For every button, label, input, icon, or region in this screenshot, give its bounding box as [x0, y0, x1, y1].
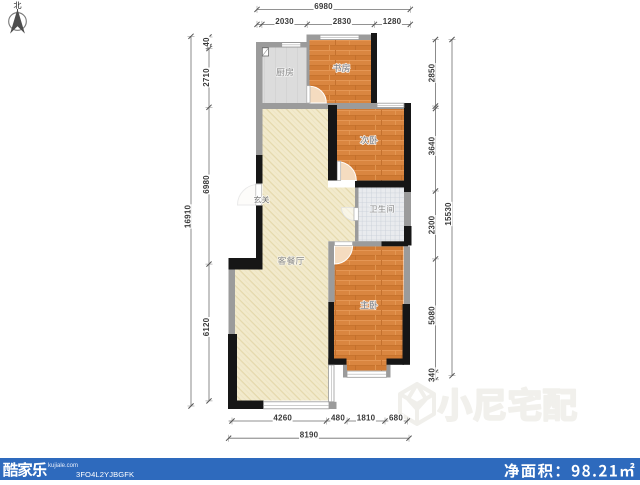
svg-text:1280: 1280: [383, 17, 402, 26]
svg-text:6120: 6120: [202, 317, 211, 336]
svg-text:2300: 2300: [428, 215, 437, 234]
svg-text:2710: 2710: [202, 68, 211, 87]
svg-text:6980: 6980: [202, 175, 211, 194]
svg-text:6980: 6980: [314, 2, 333, 11]
svg-text:5080: 5080: [428, 306, 437, 325]
svg-text:15530: 15530: [444, 202, 453, 226]
svg-text:2030: 2030: [275, 17, 294, 26]
svg-text:2830: 2830: [333, 17, 352, 26]
svg-text:8190: 8190: [300, 431, 319, 440]
svg-text:3FO4L2YJBGFK: 3FO4L2YJBGFK: [76, 470, 134, 479]
svg-text:16910: 16910: [183, 205, 192, 229]
svg-text:kujiale.com: kujiale.com: [48, 463, 78, 469]
svg-text:3640: 3640: [428, 136, 437, 155]
svg-text:4260: 4260: [273, 413, 292, 422]
svg-text:2850: 2850: [428, 63, 437, 82]
svg-text:1810: 1810: [357, 413, 376, 422]
svg-text:340: 340: [428, 368, 437, 382]
svg-text:40: 40: [202, 37, 211, 47]
svg-text:480: 480: [331, 413, 345, 422]
svg-text:680: 680: [389, 413, 403, 422]
